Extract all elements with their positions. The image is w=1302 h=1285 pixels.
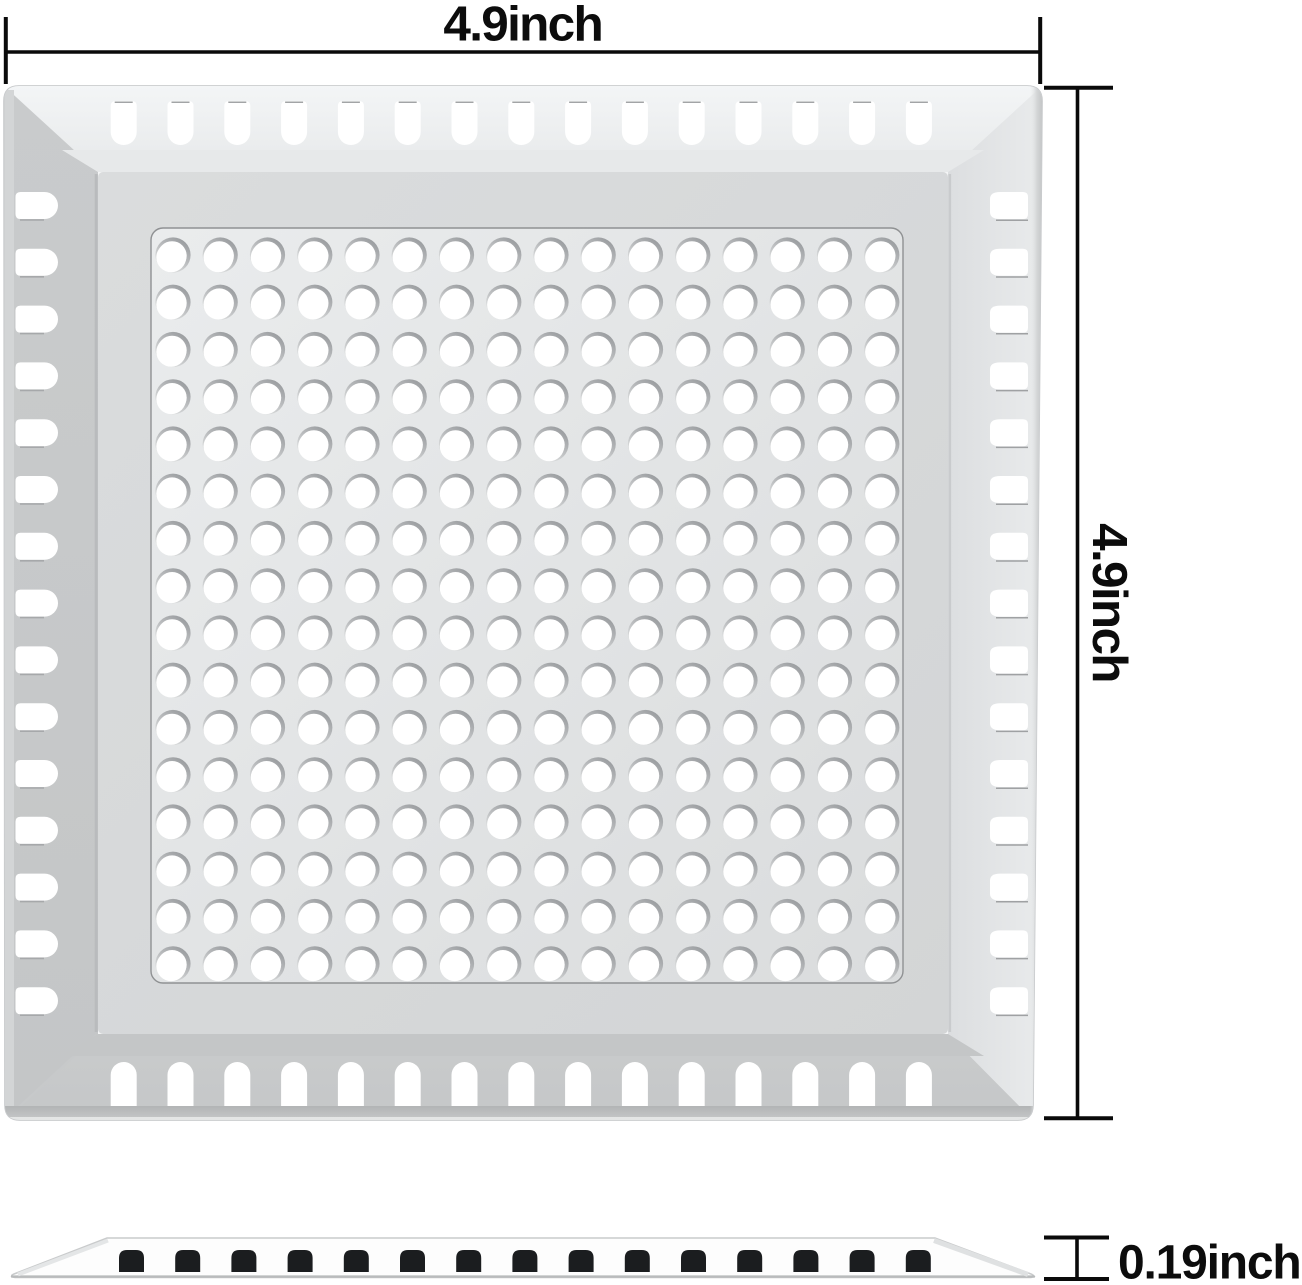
svg-text:4.9inch: 4.9inch bbox=[1082, 523, 1137, 682]
svg-text:4.9inch: 4.9inch bbox=[443, 0, 602, 52]
svg-text:0.19inch: 0.19inch bbox=[1118, 1237, 1301, 1285]
